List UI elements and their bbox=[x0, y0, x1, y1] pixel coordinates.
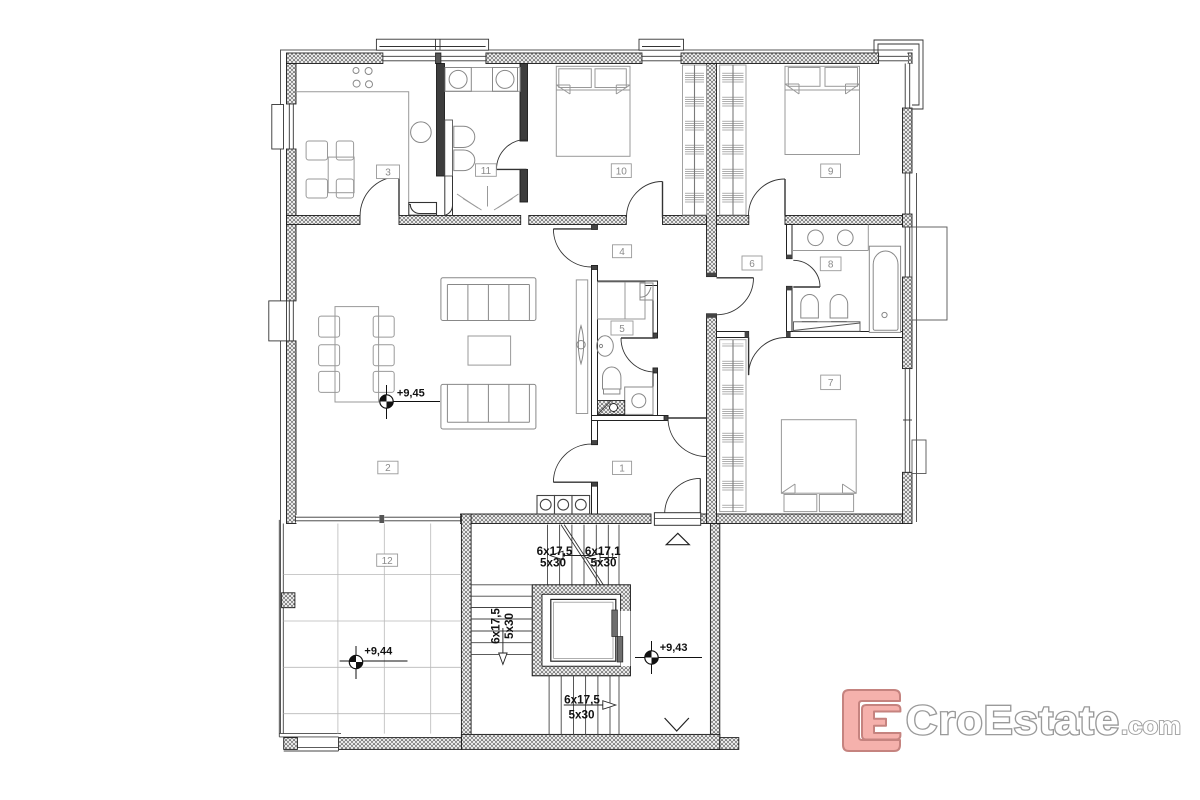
svg-text:7: 7 bbox=[828, 378, 834, 389]
svg-text:5x30: 5x30 bbox=[590, 557, 617, 570]
svg-text:+9,43: +9,43 bbox=[660, 642, 688, 654]
svg-text:12: 12 bbox=[382, 556, 394, 567]
svg-text:5x30: 5x30 bbox=[568, 709, 595, 722]
svg-text:5: 5 bbox=[619, 324, 625, 335]
svg-text:3: 3 bbox=[385, 168, 391, 179]
svg-text:6: 6 bbox=[749, 259, 755, 270]
svg-text:4: 4 bbox=[619, 247, 625, 258]
svg-text:+9,45: +9,45 bbox=[397, 388, 425, 400]
svg-text:11: 11 bbox=[481, 166, 492, 177]
svg-text:+9,44: +9,44 bbox=[364, 646, 393, 658]
svg-text:2: 2 bbox=[385, 463, 391, 474]
svg-text:10: 10 bbox=[616, 166, 628, 177]
svg-text:6x17,5: 6x17,5 bbox=[564, 694, 600, 707]
svg-text:.com: .com bbox=[1121, 713, 1181, 740]
svg-text:5x30: 5x30 bbox=[540, 557, 567, 570]
svg-text:5x30: 5x30 bbox=[503, 613, 516, 640]
svg-text:9: 9 bbox=[828, 167, 834, 178]
svg-text:8: 8 bbox=[828, 260, 834, 271]
svg-text:6x17,5: 6x17,5 bbox=[490, 608, 503, 644]
svg-text:1: 1 bbox=[619, 464, 625, 475]
svg-text:CroEstate: CroEstate bbox=[906, 697, 1120, 743]
